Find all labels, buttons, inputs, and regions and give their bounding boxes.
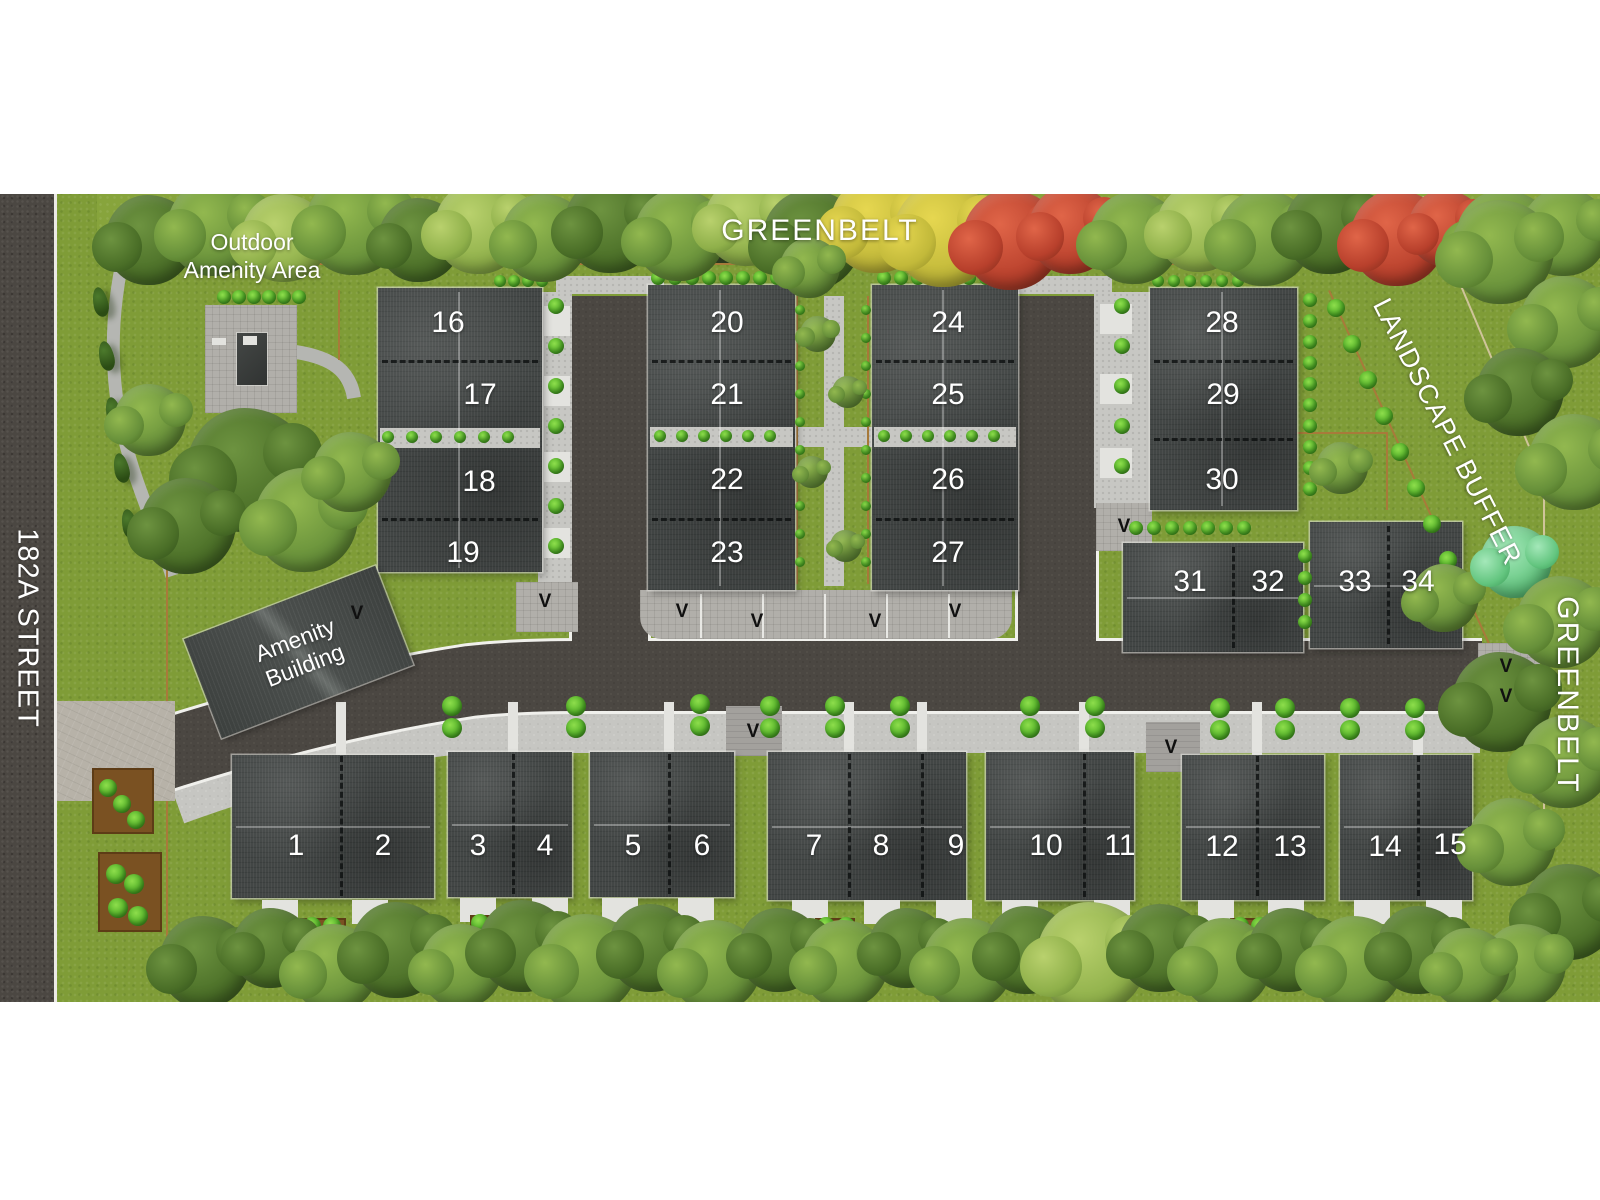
tree [114, 384, 186, 456]
lot-number: 10 [1029, 829, 1062, 863]
shrub [1275, 720, 1295, 740]
boundary-line [236, 826, 430, 828]
lot-number: 14 [1368, 830, 1401, 864]
unit-divider [1154, 438, 1293, 441]
lot-number: 27 [931, 536, 964, 570]
lot-number: 23 [710, 536, 743, 570]
tree [1316, 442, 1368, 494]
shrub [1168, 275, 1180, 287]
shrub [548, 298, 564, 314]
shrub [894, 271, 908, 285]
unit-divider [1417, 756, 1420, 896]
lot-number: 30 [1205, 463, 1238, 497]
shrub [442, 718, 462, 738]
lot-number: 19 [446, 536, 479, 570]
scenery [844, 702, 854, 758]
shrub [548, 418, 564, 434]
shrub [764, 430, 776, 442]
outdoor-amenity-line1: Outdoor [184, 228, 321, 256]
shrub [382, 431, 394, 443]
boundary-line [338, 290, 340, 360]
visitor-parking-marker: V [751, 611, 764, 633]
shrub [795, 361, 805, 371]
shrub [1303, 419, 1317, 433]
shrub [825, 696, 845, 716]
lot-number: 8 [873, 829, 890, 863]
shrub [890, 718, 910, 738]
shrub [690, 694, 710, 714]
shrub [719, 271, 733, 285]
shrub [1114, 458, 1130, 474]
unit-divider [668, 754, 671, 894]
shrub [124, 874, 144, 894]
boundary-line [1386, 432, 1388, 510]
shrub [698, 430, 710, 442]
unit-divider [876, 518, 1014, 521]
shrub [430, 431, 442, 443]
shrub [548, 378, 564, 394]
shrub [1303, 377, 1317, 391]
shrub [861, 333, 871, 343]
shrub [861, 361, 871, 371]
shrub [1085, 696, 1105, 716]
lot-number: 17 [463, 378, 496, 412]
shrub [217, 290, 231, 304]
lot-number: 9 [948, 829, 965, 863]
lot-number: 13 [1273, 830, 1306, 864]
shrub [1303, 335, 1317, 349]
site-plan-page: 1234567891011121314151617181920212223242… [0, 0, 1600, 1200]
shrub [1298, 593, 1312, 607]
boundary-line [772, 826, 962, 828]
shrub [690, 716, 710, 736]
visitor-parking-marker: V [1500, 686, 1513, 708]
lot-number: 6 [694, 829, 711, 863]
shrub [292, 290, 306, 304]
unit-divider [876, 360, 1014, 363]
visitor-parking-marker: V [747, 721, 760, 743]
greenbelt-label-top: GREENBELT [721, 214, 919, 248]
shrub [1165, 521, 1179, 535]
shrub [988, 430, 1000, 442]
cypress-tree [90, 286, 111, 318]
shrub [442, 696, 462, 716]
street-182a-label: 182A STREET [11, 528, 44, 728]
shrub [1423, 515, 1441, 533]
shrub [861, 501, 871, 511]
lot-number: 15 [1433, 828, 1466, 862]
shrub [548, 458, 564, 474]
unit-divider [1154, 360, 1293, 363]
shrub [1303, 398, 1317, 412]
scenery [336, 702, 346, 758]
shrub [99, 779, 117, 797]
shrub [277, 290, 291, 304]
shrub [106, 864, 126, 884]
shrub [1184, 275, 1196, 287]
boundary-line [990, 826, 1130, 828]
lot-number: 32 [1251, 565, 1284, 599]
shrub [877, 271, 891, 285]
shrub [1303, 440, 1317, 454]
lot-number: 22 [710, 463, 743, 497]
lot-number: 1 [288, 829, 305, 863]
scenery [917, 702, 927, 758]
shrub [1114, 418, 1130, 434]
shrub [1340, 698, 1360, 718]
greenbelt-label-right: GREENBELT [1550, 596, 1584, 794]
tree [140, 478, 236, 574]
shrub [676, 430, 688, 442]
shrub [1275, 698, 1295, 718]
unit-divider [1083, 754, 1086, 897]
unit-divider [340, 756, 343, 896]
scenery [212, 338, 226, 345]
lot-number: 5 [625, 829, 642, 863]
shrub [1327, 299, 1345, 317]
scenery [508, 702, 518, 758]
boundary-line [824, 594, 826, 638]
shrub [128, 906, 148, 926]
lot-number: 26 [931, 463, 964, 497]
shrub [1129, 521, 1143, 535]
shrub [861, 445, 871, 455]
shrub [1219, 521, 1233, 535]
outdoor-amenity-area-label: Outdoor Amenity Area [184, 228, 321, 284]
shrub [1343, 335, 1361, 353]
site-plan-render: 1234567891011121314151617181920212223242… [0, 194, 1600, 1002]
lot-number: 21 [710, 378, 743, 412]
lot-number: 7 [806, 829, 823, 863]
visitor-parking-marker: V [676, 601, 689, 623]
unit-divider [1256, 756, 1259, 896]
shrub [922, 430, 934, 442]
shrub [1210, 720, 1230, 740]
scenery [243, 336, 257, 345]
shrub [1114, 338, 1130, 354]
lot-number: 25 [931, 378, 964, 412]
cypress-tree [96, 340, 117, 372]
shrub [1303, 482, 1317, 496]
lot-number: 20 [710, 306, 743, 340]
shrub [454, 431, 466, 443]
shrub [1183, 521, 1197, 535]
shrub [795, 305, 805, 315]
shrub [654, 430, 666, 442]
visitor-parking-marker: V [1500, 656, 1513, 678]
visitor-parking-marker: V [869, 611, 882, 633]
lot-number: 33 [1338, 565, 1371, 599]
boundary-line [452, 824, 568, 826]
boundary-line [1186, 826, 1320, 828]
shrub [1114, 298, 1130, 314]
shrub [108, 898, 128, 918]
unit-divider [652, 518, 791, 521]
shrub [1201, 521, 1215, 535]
shrub [494, 275, 506, 287]
shrub [1147, 521, 1161, 535]
shrub [795, 529, 805, 539]
unit-divider [921, 754, 924, 897]
shrub [1340, 720, 1360, 740]
lot-number: 12 [1205, 830, 1238, 864]
shrub [861, 473, 871, 483]
lot-number: 16 [431, 306, 464, 340]
shrub [566, 718, 586, 738]
shrub [1114, 378, 1130, 394]
boundary-line [886, 594, 888, 638]
shrub [1237, 521, 1251, 535]
unit-divider [848, 754, 851, 897]
shrub [760, 718, 780, 738]
visitor-parking-marker: V [1118, 516, 1131, 538]
shrub [1303, 293, 1317, 307]
lot-number: 4 [537, 829, 554, 863]
lot-number: 31 [1173, 565, 1206, 599]
shrub [1359, 371, 1377, 389]
shrub [1216, 275, 1228, 287]
lot-number: 2 [375, 829, 392, 863]
shrub [1020, 696, 1040, 716]
shrub [1303, 356, 1317, 370]
unit-divider [512, 754, 515, 894]
shrub [1210, 698, 1230, 718]
shrub [742, 430, 754, 442]
lot-number: 34 [1401, 565, 1434, 599]
shrub [900, 430, 912, 442]
shrub [566, 696, 586, 716]
shrub [232, 290, 246, 304]
shrub [1375, 407, 1393, 425]
shrub [548, 338, 564, 354]
visitor-parking-marker: V [351, 603, 364, 625]
shrub [890, 696, 910, 716]
cypress-tree [111, 452, 132, 484]
shrub [1303, 314, 1317, 328]
shrub [861, 305, 871, 315]
unit-divider [382, 518, 538, 521]
shrub [760, 696, 780, 716]
outdoor-amenity-line2: Amenity Area [184, 256, 321, 284]
shrub [1020, 718, 1040, 738]
shrub [825, 718, 845, 738]
tree [830, 530, 862, 562]
visitor-parking-marker: V [1165, 737, 1178, 759]
unit-divider [382, 360, 538, 363]
shrub [966, 430, 978, 442]
shrub [944, 430, 956, 442]
shrub [720, 430, 732, 442]
shrub [502, 431, 514, 443]
lot-number: 3 [470, 829, 487, 863]
shrub [861, 417, 871, 427]
shrub [795, 389, 805, 399]
scenery-layer: 1234567891011121314151617181920212223242… [0, 194, 1600, 1002]
shrub [548, 498, 564, 514]
unit-divider [652, 360, 791, 363]
shrub [1391, 443, 1409, 461]
shrub [1298, 615, 1312, 629]
shrub [1405, 720, 1425, 740]
shrub [262, 290, 276, 304]
boundary-line [594, 824, 730, 826]
shrub [1200, 275, 1212, 287]
shrub [1405, 698, 1425, 718]
shrub [1298, 571, 1312, 585]
shrub [795, 445, 805, 455]
shrub [1085, 718, 1105, 738]
shrub [478, 431, 490, 443]
lot-number: 18 [462, 465, 495, 499]
tree [832, 376, 864, 408]
shrub [878, 430, 890, 442]
unit-divider [1232, 547, 1235, 648]
unit-divider [1387, 526, 1390, 644]
shrub [127, 811, 145, 829]
shrub [736, 271, 750, 285]
shrub [247, 290, 261, 304]
lot-number: 24 [931, 306, 964, 340]
lot-number: 29 [1206, 378, 1239, 412]
scenery [664, 702, 674, 758]
shrub [795, 501, 805, 511]
shrub [1298, 549, 1312, 563]
scenery [1252, 702, 1262, 758]
shrub [548, 538, 564, 554]
shrub [406, 431, 418, 443]
shrub [795, 557, 805, 567]
visitor-parking-marker: V [949, 601, 962, 623]
shrub [1407, 479, 1425, 497]
lot-number: 28 [1205, 306, 1238, 340]
scenery [795, 427, 872, 447]
shrub [861, 557, 871, 567]
shrub [113, 795, 131, 813]
tree [1430, 928, 1510, 1002]
lot-number: 11 [1104, 829, 1135, 863]
shrub [795, 417, 805, 427]
shrub [508, 275, 520, 287]
boundary-line [700, 594, 702, 638]
visitor-parking-marker: V [539, 591, 552, 613]
